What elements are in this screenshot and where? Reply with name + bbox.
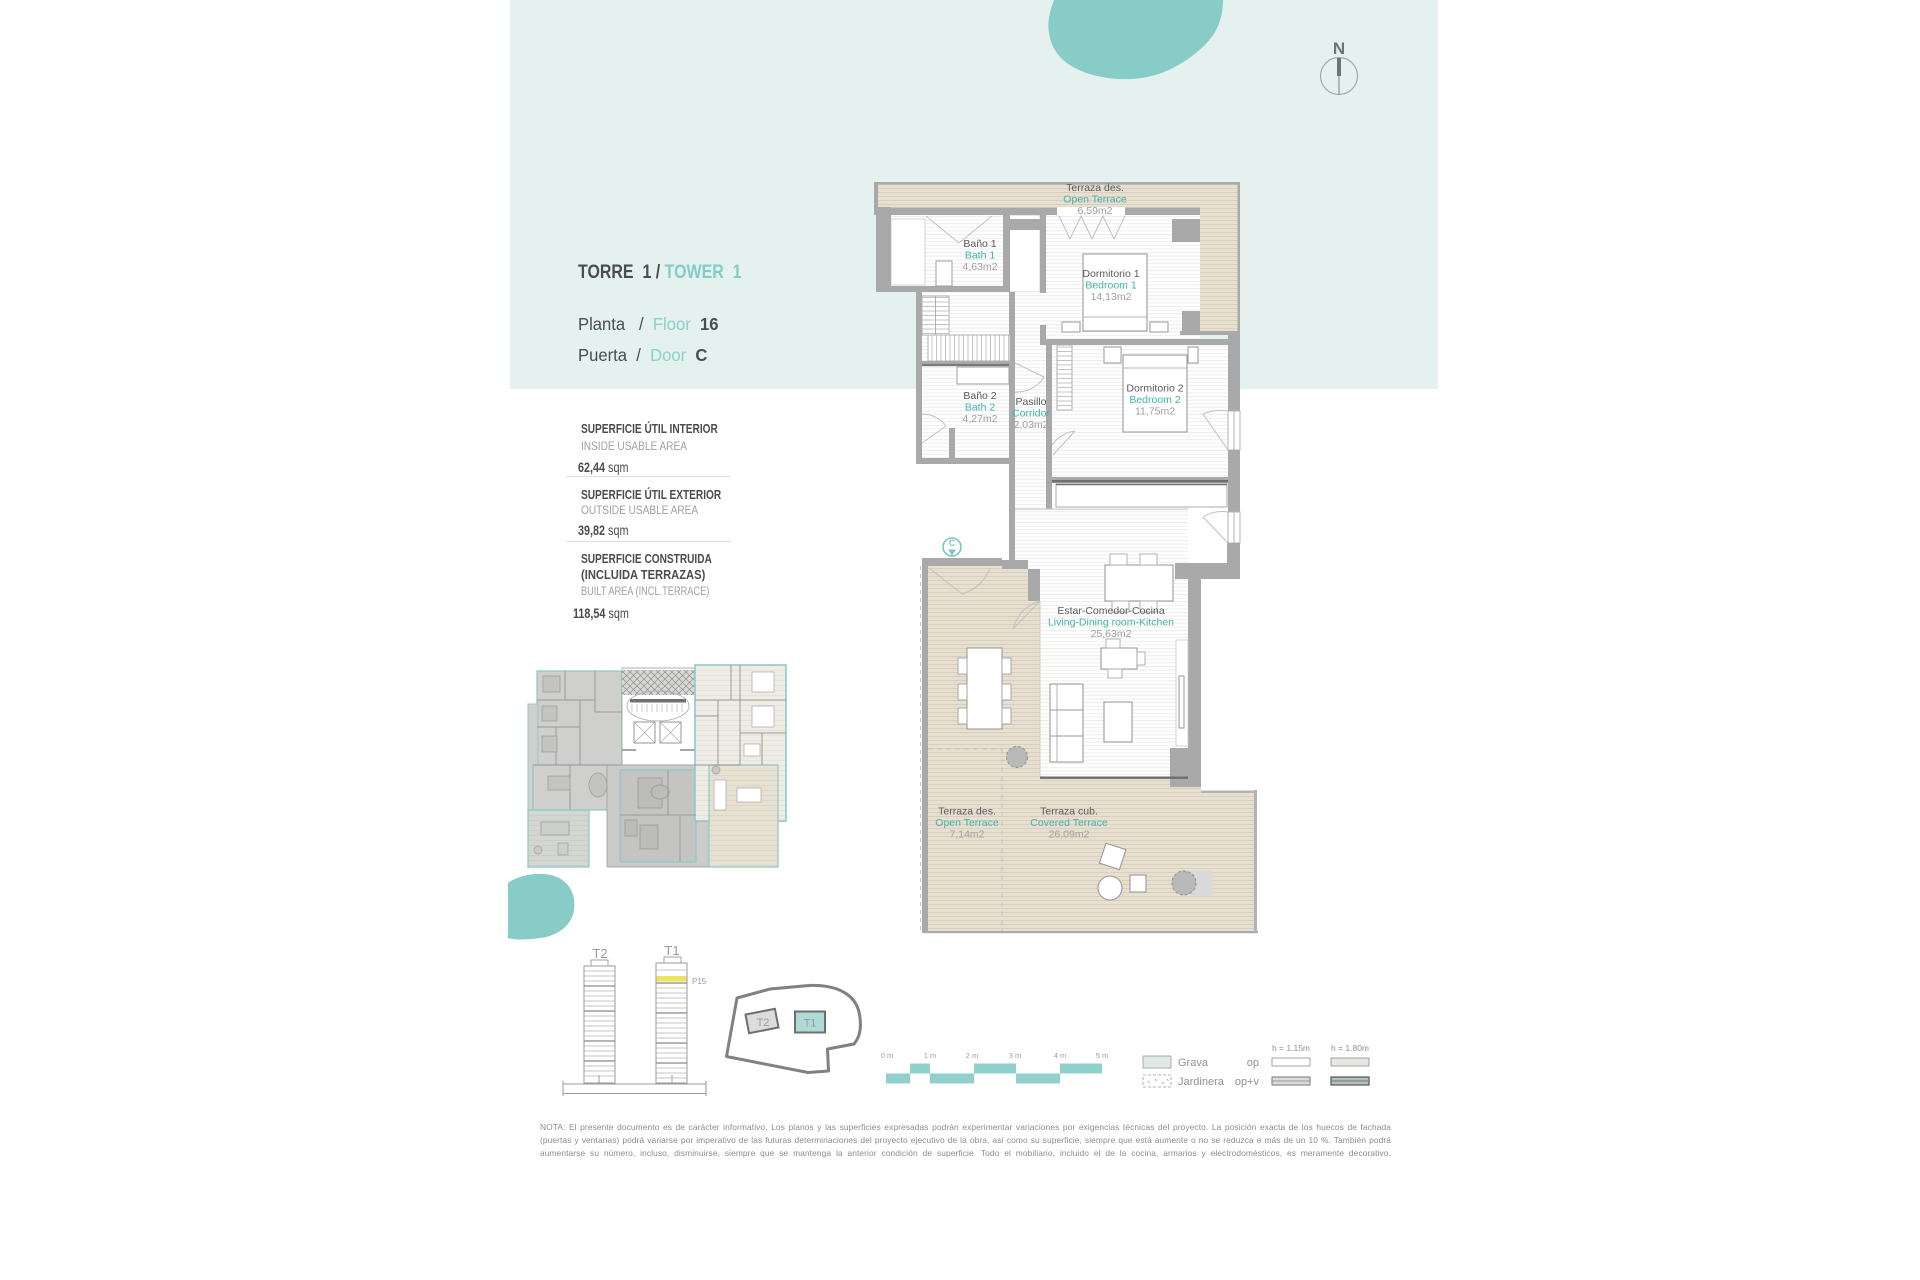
- svg-text:1 m: 1 m: [924, 1051, 937, 1060]
- svg-text:T2: T2: [592, 946, 607, 961]
- svg-text:Grava: Grava: [1178, 1057, 1209, 1069]
- svg-text:op+v: op+v: [1235, 1076, 1260, 1088]
- svg-text:2 m: 2 m: [966, 1051, 979, 1060]
- svg-text:T2: T2: [757, 1017, 770, 1029]
- svg-text:4 m: 4 m: [1054, 1051, 1067, 1060]
- svg-text:0 m: 0 m: [881, 1051, 894, 1060]
- svg-text:h = 1.80m: h = 1.80m: [1331, 1043, 1369, 1053]
- svg-text:T1: T1: [804, 1018, 817, 1030]
- svg-text:3 m: 3 m: [1009, 1051, 1022, 1060]
- svg-text:P15: P15: [692, 977, 707, 986]
- svg-text:op: op: [1247, 1057, 1259, 1069]
- svg-text:h = 1.15m: h = 1.15m: [1272, 1043, 1310, 1053]
- svg-text:T1: T1: [664, 943, 679, 958]
- svg-text:5 m: 5 m: [1096, 1051, 1109, 1060]
- svg-text:Jardinera: Jardinera: [1178, 1076, 1225, 1088]
